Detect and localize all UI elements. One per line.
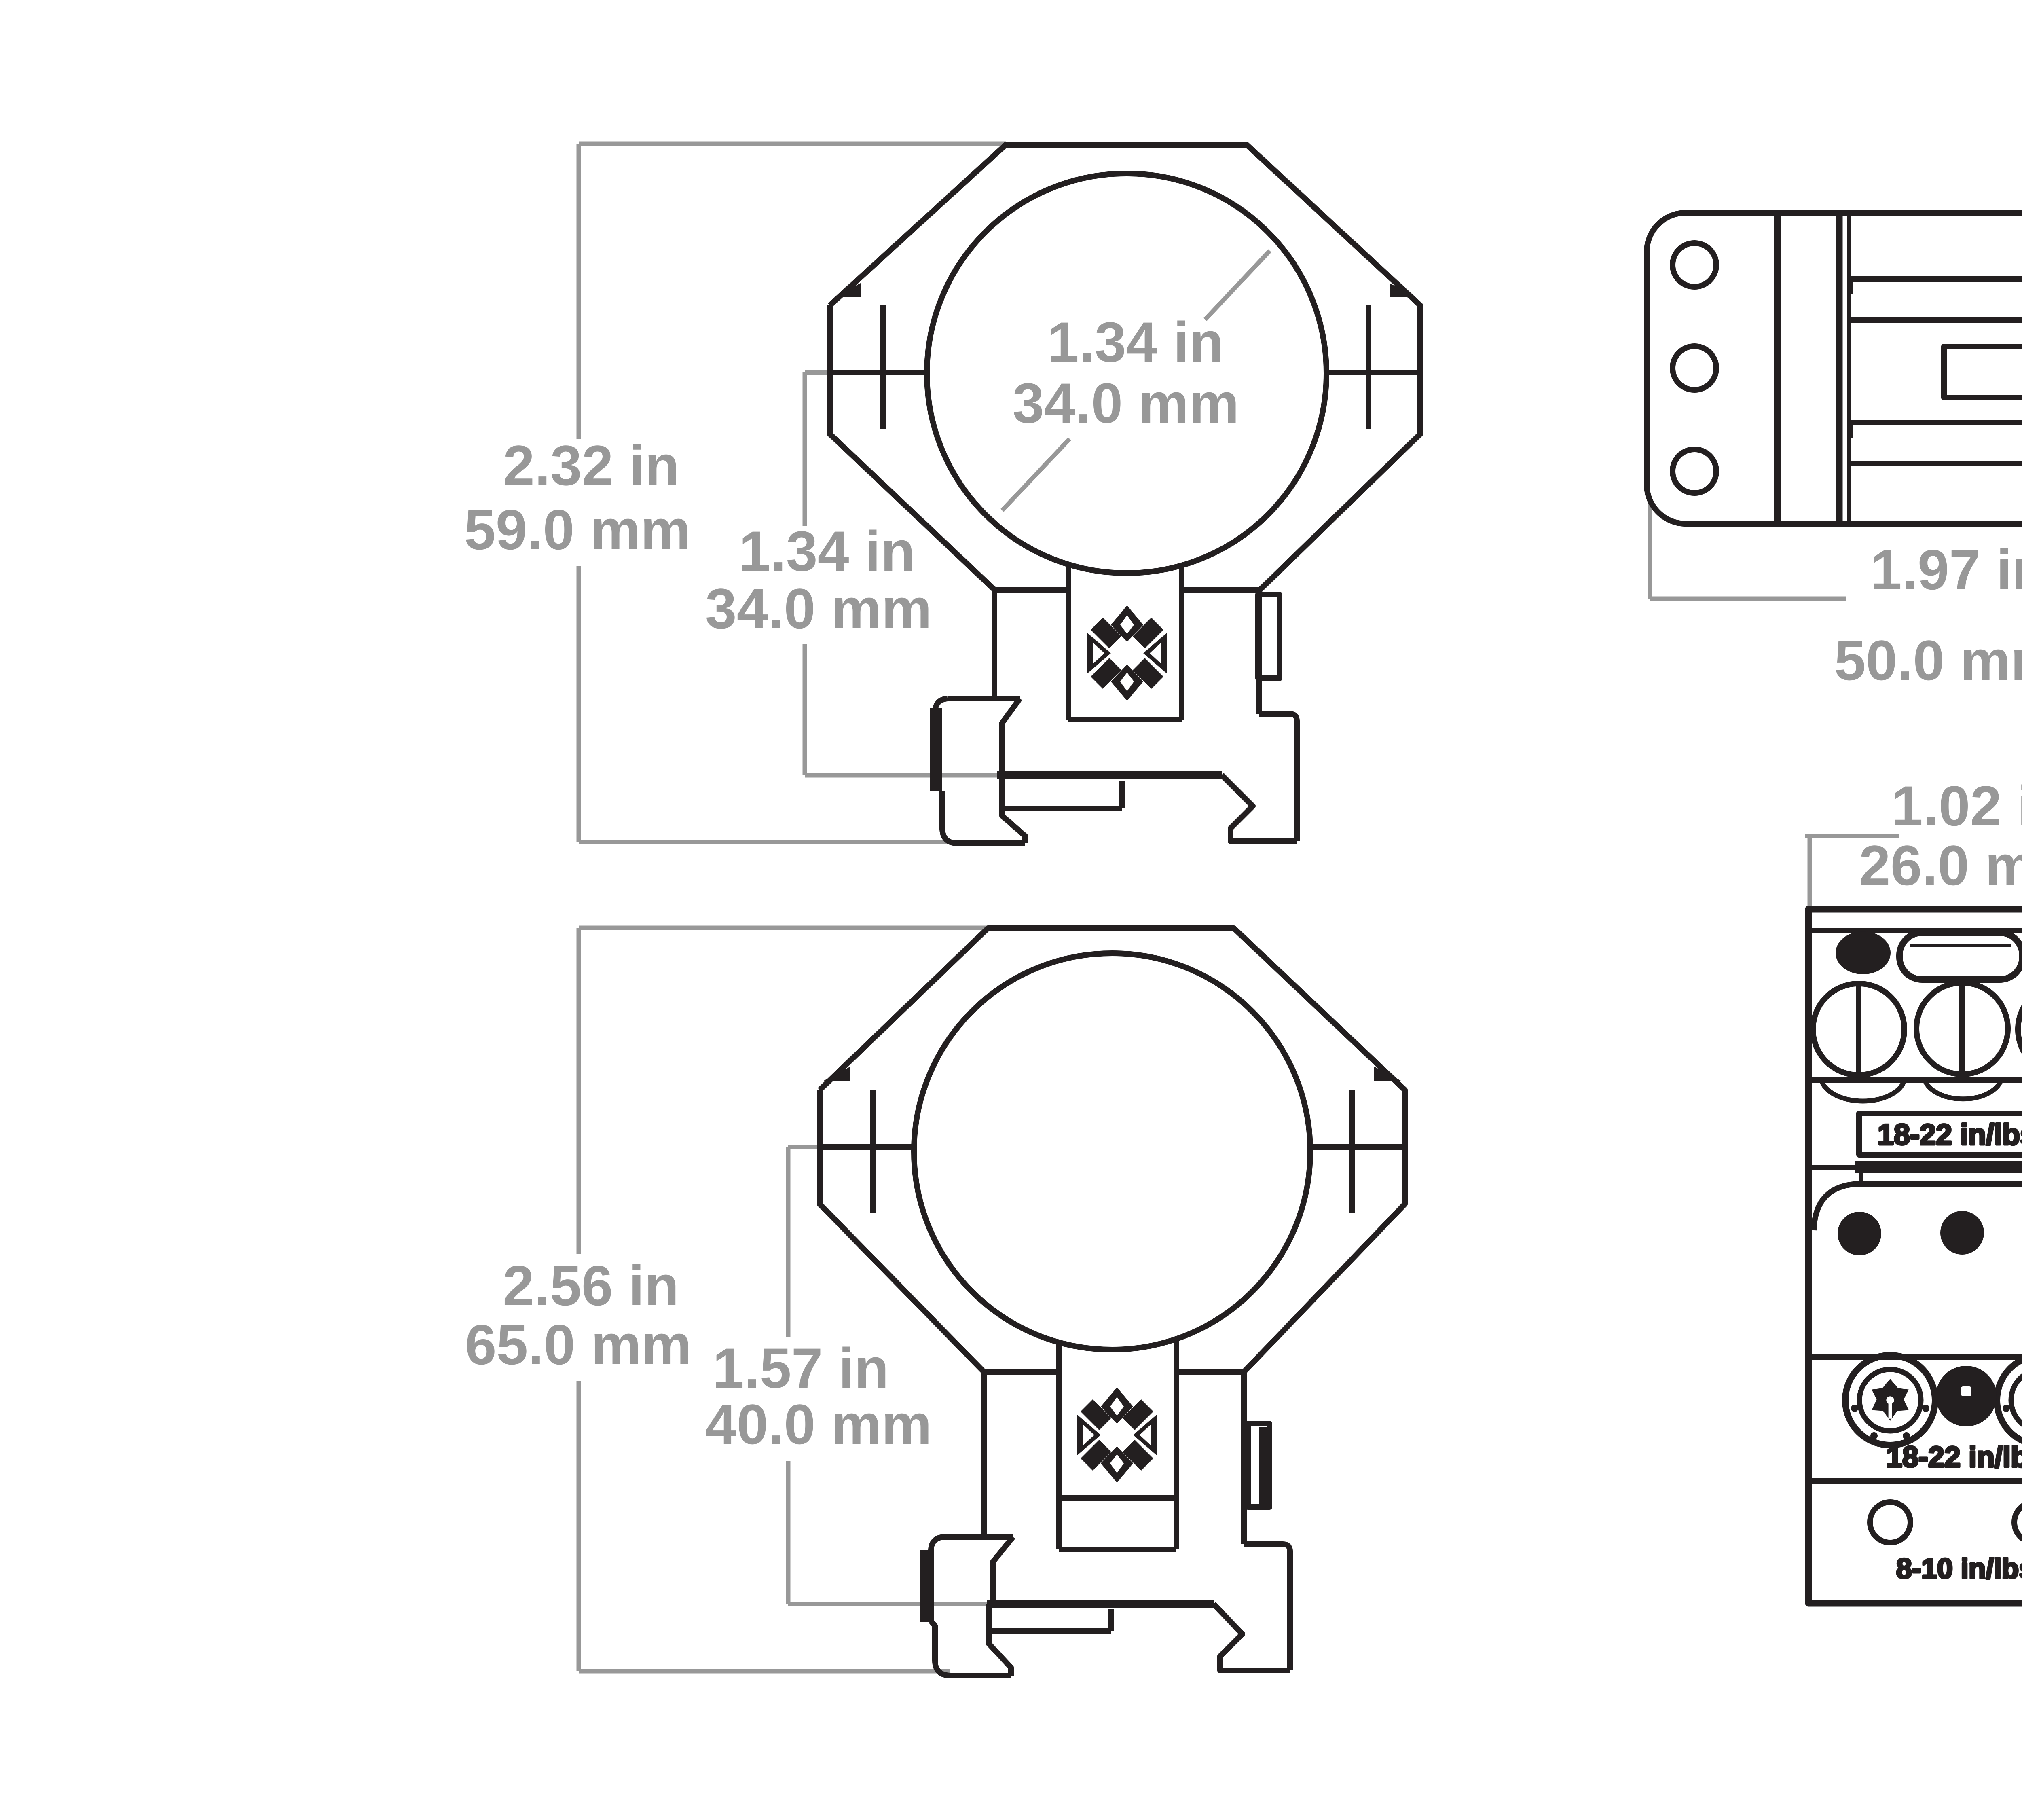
svg-text:2.32 in: 2.32 in	[503, 434, 679, 497]
svg-text:1.02 in: 1.02 in	[1891, 774, 2022, 838]
svg-text:34.0 mm: 34.0 mm	[705, 577, 932, 640]
svg-text:1.97 in: 1.97 in	[1870, 538, 2022, 601]
svg-text:40.0 mm: 40.0 mm	[705, 1393, 932, 1456]
svg-text:65.0 mm: 65.0 mm	[465, 1313, 692, 1376]
svg-text:1.57 in: 1.57 in	[713, 1336, 889, 1400]
svg-text:50.0 mm: 50.0 mm	[1834, 629, 2022, 692]
svg-text:2.56 in: 2.56 in	[503, 1254, 679, 1317]
svg-text:26.0 mm: 26.0 mm	[1859, 834, 2022, 897]
svg-text:18-22 in/lbs: 18-22 in/lbs	[1886, 1441, 2022, 1473]
svg-text:59.0 mm: 59.0 mm	[464, 498, 691, 561]
svg-text:1.34 in: 1.34 in	[1047, 310, 1224, 374]
svg-text:1.34 in: 1.34 in	[739, 519, 915, 583]
svg-text:18-22 in/lbs: 18-22 in/lbs	[1878, 1119, 2022, 1151]
svg-text:8-10 in/lbs: 8-10 in/lbs	[1896, 1553, 2022, 1584]
svg-text:34.0 mm: 34.0 mm	[1013, 371, 1239, 435]
